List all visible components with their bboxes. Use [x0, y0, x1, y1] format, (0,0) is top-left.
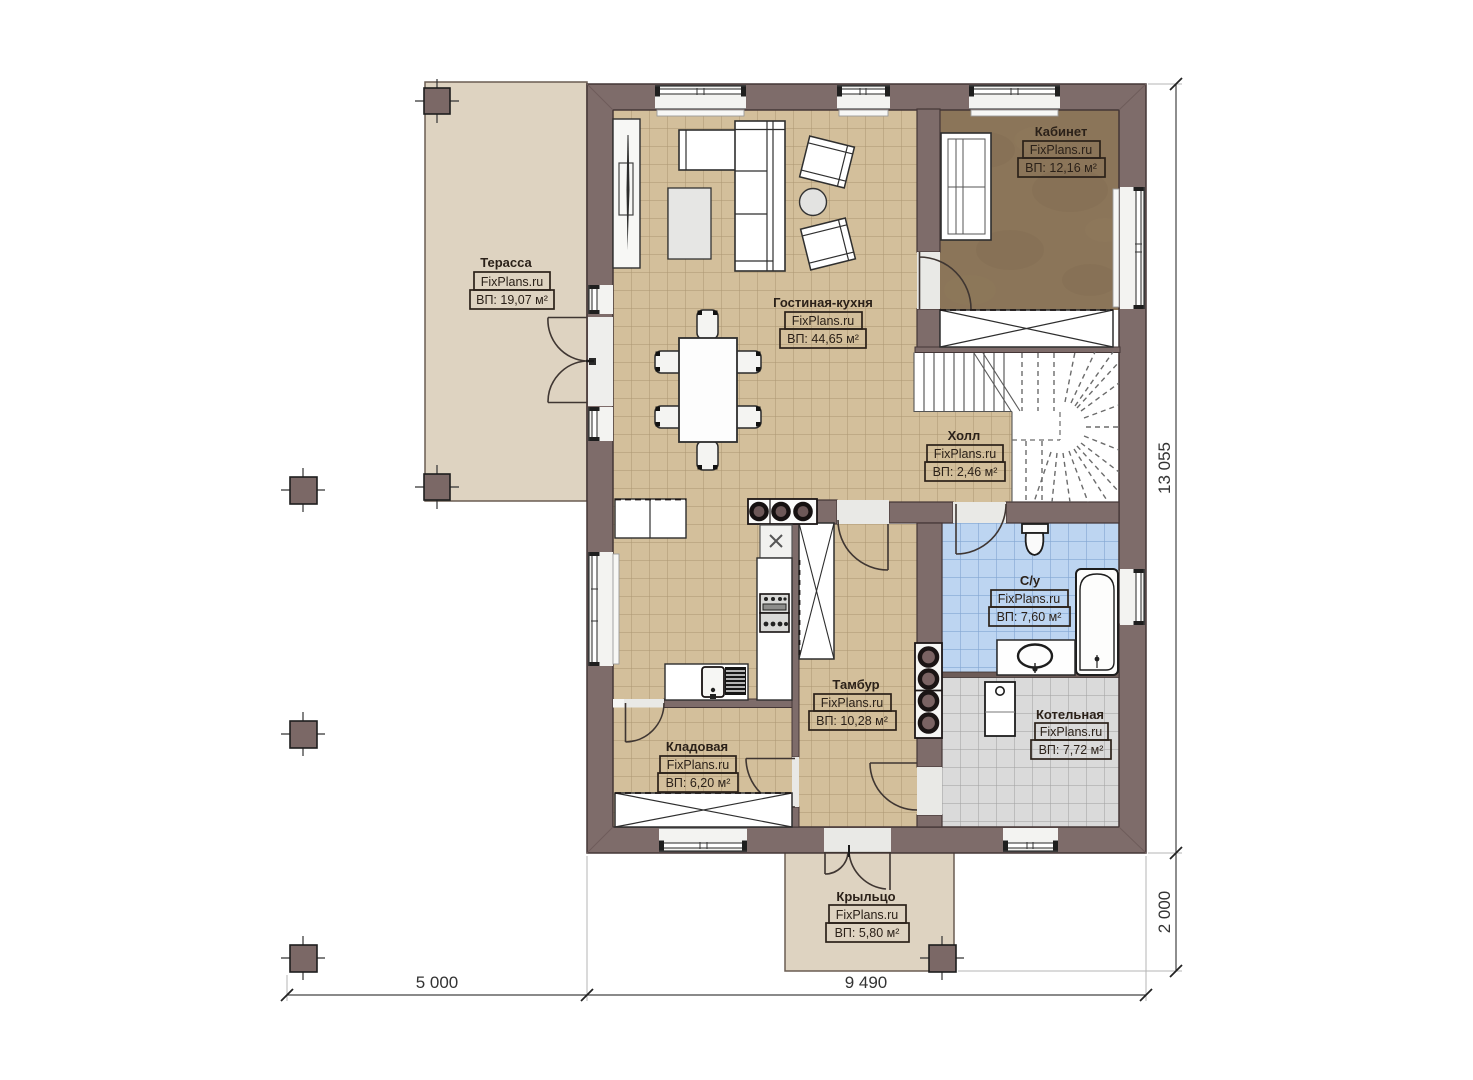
svg-text:ВП: 7,60 м²: ВП: 7,60 м² [997, 610, 1062, 624]
svg-text:FixPlans.ru: FixPlans.ru [481, 275, 544, 289]
svg-text:FixPlans.ru: FixPlans.ru [1030, 143, 1093, 157]
svg-text:Холл: Холл [948, 428, 981, 443]
svg-text:Кабинет: Кабинет [1035, 124, 1088, 139]
svg-text:ВП: 12,16 м²: ВП: 12,16 м² [1025, 161, 1097, 175]
svg-text:С/у: С/у [1020, 573, 1041, 588]
svg-text:Крыльцо: Крыльцо [836, 889, 895, 904]
svg-text:ВП: 7,72 м²: ВП: 7,72 м² [1039, 743, 1104, 757]
svg-text:13 055: 13 055 [1155, 442, 1174, 494]
svg-text:ВП: 5,80 м²: ВП: 5,80 м² [835, 926, 900, 940]
svg-text:Котельная: Котельная [1036, 707, 1104, 722]
svg-text:FixPlans.ru: FixPlans.ru [667, 758, 730, 772]
svg-text:Терасса: Терасса [480, 255, 532, 270]
svg-text:FixPlans.ru: FixPlans.ru [836, 908, 899, 922]
svg-text:FixPlans.ru: FixPlans.ru [998, 592, 1061, 606]
svg-text:9 490: 9 490 [845, 973, 888, 992]
svg-text:ВП: 19,07 м²: ВП: 19,07 м² [476, 293, 548, 307]
svg-text:FixPlans.ru: FixPlans.ru [934, 447, 997, 461]
svg-text:Тамбур: Тамбур [832, 677, 879, 692]
svg-text:Кладовая: Кладовая [666, 739, 728, 754]
svg-text:2 000: 2 000 [1155, 891, 1174, 934]
svg-text:ВП: 44,65 м²: ВП: 44,65 м² [787, 332, 859, 346]
svg-text:ВП: 2,46 м²: ВП: 2,46 м² [933, 465, 998, 479]
svg-text:FixPlans.ru: FixPlans.ru [792, 314, 855, 328]
svg-text:ВП: 10,28 м²: ВП: 10,28 м² [816, 714, 888, 728]
svg-text:FixPlans.ru: FixPlans.ru [1040, 725, 1103, 739]
svg-text:FixPlans.ru: FixPlans.ru [821, 696, 884, 710]
svg-text:5 000: 5 000 [416, 973, 459, 992]
svg-text:ВП: 6,20 м²: ВП: 6,20 м² [666, 776, 731, 790]
svg-text:Гостиная-кухня: Гостиная-кухня [773, 295, 873, 310]
